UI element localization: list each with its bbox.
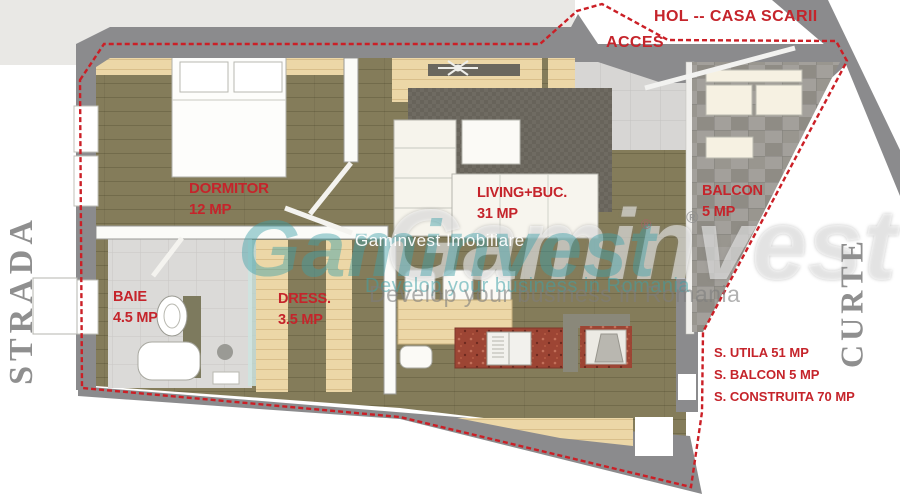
room-label-dormitor: DORMITOR 12 MP	[189, 178, 269, 220]
cooktop	[428, 64, 520, 76]
room-area: 4.5 MP	[113, 308, 158, 329]
room-area: 5 MP	[702, 202, 763, 223]
shower-tray	[213, 372, 239, 384]
room-area: 3.5 MP	[278, 310, 331, 331]
kitchen-cabinets	[394, 120, 456, 236]
room-label-balcon: BALCON 5 MP	[702, 181, 763, 223]
room-name: BAIE	[113, 287, 158, 308]
floor-plan-graphic	[0, 0, 900, 503]
window-left-2	[74, 156, 98, 206]
fireplace	[563, 314, 632, 372]
courtyard-side-label: CURTE	[834, 203, 871, 403]
bath-sink	[157, 296, 187, 336]
sidewalk-top	[0, 0, 575, 27]
room-name: LIVING+BUC.	[477, 183, 567, 204]
room-area: 31 MP	[477, 204, 567, 225]
window-left-3	[74, 280, 98, 334]
room-label-living: LIVING+BUC. 31 MP	[477, 183, 567, 225]
terrace-step	[635, 417, 673, 456]
coffee-table	[462, 120, 520, 164]
wall-top	[110, 27, 575, 58]
door-right	[678, 374, 696, 400]
toilet	[138, 342, 200, 380]
shower-drain	[217, 344, 233, 360]
wall-dress-living	[384, 238, 396, 394]
room-name: DORMITOR	[189, 178, 269, 199]
bed	[172, 57, 286, 177]
room-name: BALCON	[702, 181, 763, 202]
hol-casa-scarii-label: HOL -- CASA SCARII	[654, 6, 818, 27]
shower-glass	[248, 240, 256, 386]
street-side-label: STRADA	[3, 190, 41, 410]
room-label-baie: BAIE 4.5 MP	[113, 287, 158, 329]
room-name: DRESS.	[278, 289, 331, 310]
acces-label: ACCES	[606, 32, 664, 53]
room-area: 12 MP	[189, 199, 269, 220]
dining-chair	[400, 346, 432, 368]
kitchen-island	[455, 328, 567, 368]
room-label-dress: DRESS. 3.5 MP	[278, 289, 331, 331]
wall-bedroom-living	[344, 58, 358, 162]
floor-plan: Gaminvest Gaminvest ® ® Gaminvest Imobil…	[0, 0, 900, 503]
window-left-1	[74, 106, 98, 152]
bar-chairs	[405, 270, 511, 304]
